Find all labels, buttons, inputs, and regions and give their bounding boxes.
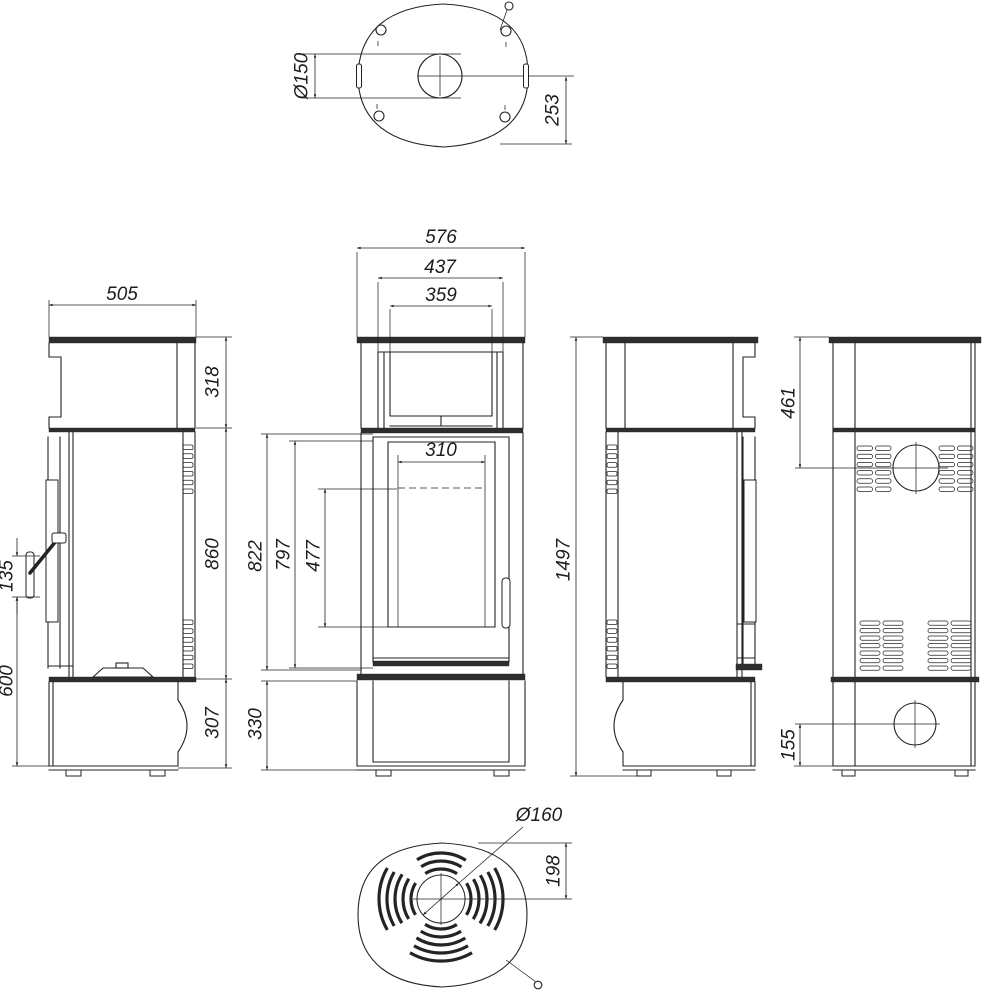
- foot: [376, 770, 391, 776]
- seam-top: [49, 428, 195, 432]
- foot: [842, 770, 855, 776]
- chain-ring: [505, 2, 513, 10]
- mount-hole: [376, 25, 386, 35]
- seam-base: [49, 677, 196, 682]
- top-view: Ø150 253: [292, 2, 575, 147]
- front-view: 576 437 359 310 822 797 477 330: [246, 227, 526, 776]
- seam-base: [606, 677, 755, 682]
- dim-front-total-width: 576: [425, 227, 457, 248]
- dim-front-glass-height: 477: [304, 539, 325, 572]
- dim-left-top-section: 318: [203, 366, 224, 398]
- extension-lines: [570, 337, 640, 776]
- right-view-structure: [606, 343, 755, 677]
- dim-bottom-inlet-diameter: Ø160: [515, 805, 563, 826]
- side-vent-lower: [607, 620, 617, 669]
- handle-hinge: [52, 533, 66, 543]
- dim-left-handle: 135: [0, 560, 18, 592]
- dim-top-flue-to-back: 253: [543, 94, 564, 127]
- stove-dimensional-drawing: Ø150 253 505 318 860 307 135 600: [0, 0, 1000, 992]
- door-handle: [502, 578, 510, 628]
- seam-base: [357, 674, 525, 680]
- dim-left-body: 860: [203, 538, 224, 570]
- top-plate: [357, 337, 525, 343]
- extension-lines: [12, 300, 232, 768]
- seam-top: [361, 428, 523, 433]
- foot: [717, 770, 731, 776]
- dim-front-door: 797: [274, 538, 295, 571]
- back-vent-upper-right: [939, 446, 973, 491]
- side-vent-lower: [183, 620, 193, 669]
- top-plate: [829, 337, 981, 343]
- dim-right-total-height: 1497: [554, 537, 575, 581]
- left-view-structure: [48, 343, 195, 677]
- back-vent-upper-left: [857, 446, 891, 491]
- door-edge-panel: [744, 480, 756, 622]
- foot: [494, 770, 509, 776]
- upper-section-structure: [361, 343, 523, 428]
- door-bottom-band: [736, 664, 762, 670]
- back-vent-lower-left: [860, 621, 903, 670]
- back-view: 461 155: [779, 337, 982, 776]
- dim-front-glass-width: 310: [425, 440, 457, 461]
- ash-lip: [93, 668, 153, 677]
- side-vent-upper: [607, 445, 617, 494]
- mount-hole-ticks: [377, 41, 506, 110]
- side-view-right: 1497: [554, 337, 763, 776]
- ash-lip-knob: [116, 663, 128, 668]
- side-vent-upper: [183, 445, 193, 494]
- door-handle-bar: [26, 552, 34, 598]
- base-structure: [833, 682, 975, 770]
- dim-front-base-height: 330: [246, 708, 267, 740]
- dim-front-opening-width: 359: [425, 285, 457, 306]
- glass-opening-lines: [398, 466, 485, 627]
- bottom-view: Ø160 198: [358, 805, 572, 989]
- dim-left-depth: 505: [106, 284, 138, 305]
- dim-left-base: 307: [203, 706, 224, 739]
- drawing-canvas: Ø150 253 505 318 860 307 135 600: [0, 0, 1000, 992]
- dim-front-frame-width: 437: [424, 257, 457, 278]
- back-vent-lower-right: [928, 621, 971, 670]
- base-structure: [614, 682, 755, 770]
- base-structure: [357, 681, 525, 770]
- top-plate: [49, 337, 196, 343]
- dim-back-inlet-from-floor: 155: [779, 729, 800, 761]
- chain-link: [506, 960, 536, 982]
- foot: [66, 770, 81, 776]
- flue-centerlines: [417, 56, 574, 96]
- foot: [955, 770, 968, 776]
- seam-top: [833, 428, 975, 432]
- dim-top-flue-diameter: Ø150: [292, 52, 313, 100]
- seam-top: [606, 428, 755, 432]
- edge-slot: [357, 64, 362, 88]
- edge-slot: [524, 64, 529, 88]
- door-bottom-band: [373, 661, 509, 666]
- back-view-structure: [833, 343, 975, 677]
- mount-hole: [501, 26, 511, 36]
- extension-lines: [261, 252, 525, 770]
- dim-back-flue-from-top: 461: [779, 387, 800, 419]
- extension-lines: [303, 54, 572, 144]
- body-structure: [361, 433, 523, 676]
- top-plate: [603, 337, 758, 343]
- seam-base: [831, 677, 979, 682]
- mount-hole: [500, 112, 510, 122]
- dim-front-door-outer: 822: [246, 540, 267, 572]
- foot: [637, 770, 651, 776]
- base-structure: [49, 682, 187, 770]
- chain-ring: [534, 981, 542, 989]
- foot: [150, 770, 165, 776]
- side-view-left: 505 318 860 307 135 600: [0, 284, 232, 776]
- mount-hole: [374, 111, 384, 121]
- dim-bottom-inlet-to-back: 198: [544, 855, 565, 887]
- dim-left-handle-floor: 600: [0, 665, 18, 697]
- inlet-centerlines: [795, 700, 940, 748]
